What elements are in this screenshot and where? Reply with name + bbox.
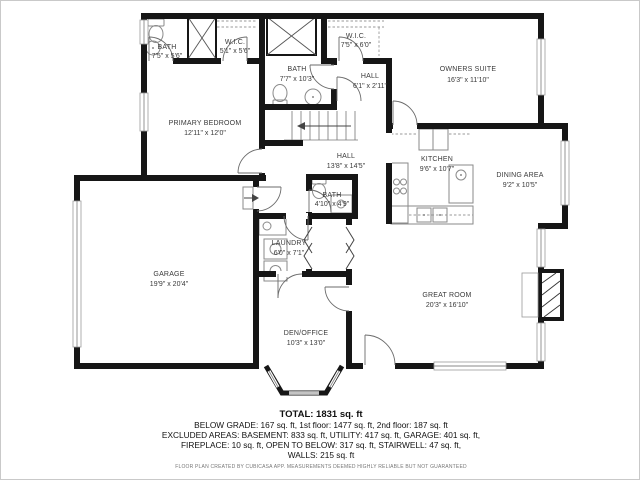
svg-text:10'3" x 13'0": 10'3" x 13'0" — [287, 340, 326, 347]
cooktop-burner — [394, 188, 400, 194]
floor-plan-drawing: BATH 7'5" x 5'6" W.I.C. 5'1" x 5'6" W.I.… — [1, 1, 640, 406]
window — [561, 141, 569, 205]
window — [434, 362, 506, 370]
room-label-wic-owners: W.I.C. 7'5" x 6'0" — [341, 33, 372, 49]
bay-window — [266, 366, 342, 393]
room-label-hall-main: HALL 13'8" x 14'5" — [327, 153, 366, 170]
svg-text:W.I.C.: W.I.C. — [225, 39, 245, 46]
wall-garage-bottom — [74, 363, 258, 369]
appliance-knob — [423, 214, 425, 216]
room-label-dining-area: DINING AREA 9'2" x 10'5" — [496, 172, 543, 189]
cooktop-burner — [401, 179, 407, 185]
sink-drain — [152, 47, 154, 49]
svg-text:DEN/OFFICE: DEN/OFFICE — [284, 330, 329, 337]
room-label-great-room: GREAT ROOM 20'3" x 16'10" — [422, 292, 471, 309]
svg-text:7'7" x 10'3": 7'7" x 10'3" — [280, 76, 315, 83]
svg-text:6'0" x 7'1": 6'0" x 7'1" — [274, 250, 305, 257]
cooktop-burner — [394, 179, 400, 185]
room-label-bath-half: BATH 4'10" x 4'9" — [315, 192, 350, 208]
wall-garage-top — [74, 175, 266, 181]
svg-text:16'3" x 11'10": 16'3" x 11'10" — [447, 77, 489, 84]
svg-text:4'10" x 4'9": 4'10" x 4'9" — [315, 201, 350, 208]
svg-text:BATH: BATH — [158, 44, 177, 51]
sink-drain — [312, 96, 314, 98]
room-label-den-office: DEN/OFFICE 10'3" x 13'0" — [284, 330, 329, 347]
svg-text:OWNERS SUITE: OWNERS SUITE — [440, 66, 497, 73]
summary-line-1: BELOW GRADE: 167 sq. ft, 1st floor: 1477… — [1, 420, 640, 430]
door-swing — [238, 149, 262, 173]
hearth — [522, 273, 538, 317]
fireplace — [522, 269, 564, 321]
svg-text:KITCHEN: KITCHEN — [421, 156, 453, 163]
room-label-bath-top-left: BATH 7'5" x 5'6" — [152, 44, 183, 60]
svg-text:13'8" x 14'5": 13'8" x 14'5" — [327, 163, 366, 170]
summary-line-3: FIREPLACE: 10 sq. ft, OPEN TO BELOW: 317… — [1, 440, 640, 450]
svg-text:20'3" x 16'10": 20'3" x 16'10" — [426, 302, 469, 309]
door-swing — [393, 101, 417, 125]
svg-text:DINING AREA: DINING AREA — [496, 172, 543, 179]
laundry-sink — [263, 222, 271, 230]
svg-text:12'11" x 12'0": 12'11" x 12'0" — [184, 130, 226, 137]
toilet-bowl — [273, 85, 287, 102]
wall-bath-upper-bottom — [259, 104, 337, 110]
room-label-owners-suite: OWNERS SUITE 16'3" x 11'10" — [440, 66, 497, 84]
total-area-text: TOTAL: 1831 sq. ft — [1, 409, 640, 420]
room-label-garage: GARAGE 19'9" x 20'4" — [150, 271, 189, 288]
svg-text:7'5" x 5'6": 7'5" x 5'6" — [152, 53, 183, 60]
window — [73, 201, 81, 347]
svg-text:9'2" x 10'5": 9'2" x 10'5" — [503, 182, 538, 189]
sink-drain — [460, 174, 462, 176]
room-label-primary-bedroom: PRIMARY BEDROOM 12'11" x 12'0" — [169, 120, 242, 137]
staircase — [284, 111, 358, 140]
appliance-knob — [439, 214, 441, 216]
wall-halfbath-right — [352, 174, 358, 219]
disclaimer-text: FLOOR PLAN CREATED BY CUBICASA APP. MEAS… — [1, 464, 640, 470]
window — [537, 39, 545, 95]
window — [537, 323, 545, 361]
window — [140, 20, 148, 44]
svg-text:W.I.C.: W.I.C. — [346, 33, 366, 40]
door-swing — [257, 187, 281, 211]
svg-text:GREAT ROOM: GREAT ROOM — [422, 292, 471, 299]
svg-text:7'5" x 6'0": 7'5" x 6'0" — [341, 42, 372, 49]
svg-text:6'1" x 2'11": 6'1" x 2'11" — [353, 83, 387, 90]
room-label-laundry: LAUNDRY 6'0" x 7'1" — [272, 240, 307, 257]
window — [140, 93, 148, 131]
svg-text:PRIMARY BEDROOM: PRIMARY BEDROOM — [169, 120, 242, 127]
wall-wic-left — [321, 13, 327, 64]
room-label-wic-small: W.I.C. 5'1" x 5'6" — [220, 39, 251, 55]
kitchen-fixtures — [391, 129, 473, 224]
shower-small — [188, 17, 216, 59]
svg-text:LAUNDRY: LAUNDRY — [272, 240, 307, 247]
summary-line-4: WALLS: 215 sq. ft — [1, 450, 640, 460]
floor-plan-page: BATH 7'5" x 5'6" W.I.C. 5'1" x 5'6" W.I.… — [0, 0, 640, 480]
svg-text:5'1" x 5'6": 5'1" x 5'6" — [220, 48, 251, 55]
door-swing — [325, 287, 349, 311]
room-label-hall-small: HALL 6'1" x 2'11" — [353, 73, 387, 90]
door-swing — [278, 274, 302, 298]
svg-text:HALL: HALL — [361, 73, 379, 80]
svg-text:HALL: HALL — [337, 153, 355, 160]
wall-top — [141, 13, 544, 19]
room-label-bath-upper: BATH 7'7" x 10'3" — [280, 66, 315, 83]
wall-halfbath-top — [306, 174, 358, 180]
svg-text:19'9" x 20'4": 19'9" x 20'4" — [150, 281, 189, 288]
svg-text:BATH: BATH — [288, 66, 307, 73]
svg-text:9'6" x 10'7": 9'6" x 10'7" — [420, 166, 455, 173]
svg-text:GARAGE: GARAGE — [153, 271, 184, 278]
door-swing — [339, 37, 363, 61]
area-summary: TOTAL: 1831 sq. ft BELOW GRADE: 167 sq. … — [1, 409, 640, 470]
wall-den-top — [253, 271, 352, 277]
door-swing — [365, 335, 395, 365]
wall-stair-stub — [259, 140, 303, 146]
summary-line-2: EXCLUDED AREAS: BASEMENT: 833 sq. ft, UT… — [1, 430, 640, 440]
window — [537, 229, 545, 267]
toilet-tank — [148, 19, 164, 26]
cooktop-burner — [401, 188, 407, 194]
door-swing — [284, 216, 308, 240]
svg-text:BATH: BATH — [323, 192, 342, 199]
shower-large — [267, 17, 316, 55]
